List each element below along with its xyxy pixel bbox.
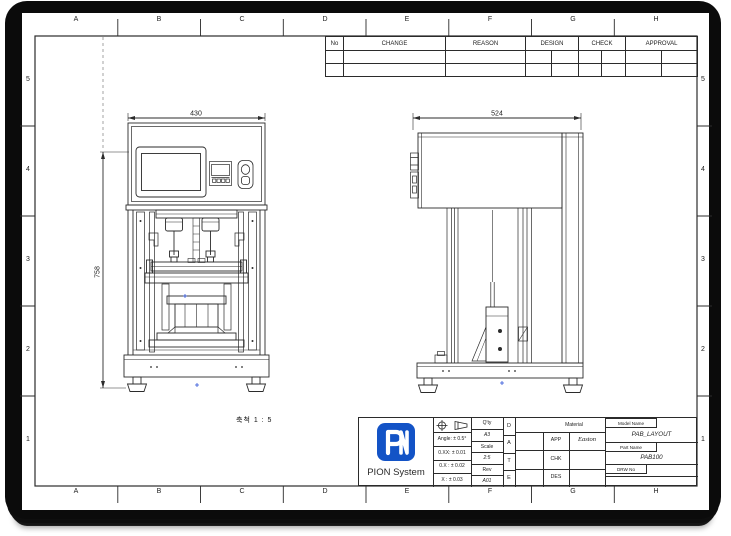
grid-row-label: 5 xyxy=(697,76,709,83)
revision-empty-row xyxy=(326,51,698,64)
pion-logo xyxy=(374,422,418,464)
grid-col-label: G xyxy=(558,16,588,23)
revision-header-row: No CHANGE REASON DESIGN CHECK APPROVAL xyxy=(326,37,698,51)
view-scale-note: 축척 1 : 5 xyxy=(236,415,326,425)
grid-col-label: F xyxy=(475,16,505,23)
rev-label: Rev xyxy=(471,468,503,473)
grid-col-label: C xyxy=(227,16,257,23)
app-label: APP xyxy=(543,438,569,443)
rev-col-check: CHECK xyxy=(579,37,626,51)
grid-col-label: H xyxy=(641,16,671,23)
scale-label: Scale xyxy=(471,445,503,450)
part-name-value: PAB100 xyxy=(605,455,698,461)
part-name-label: Part Name xyxy=(605,442,657,452)
grid-col-label: A xyxy=(61,488,91,495)
grid-col-label: D xyxy=(310,16,340,23)
grid-col-label: A xyxy=(61,16,91,23)
model-name-value: PAB_LAYOUT xyxy=(605,432,698,438)
grid-row-label: 2 xyxy=(22,346,34,353)
revision-empty-row xyxy=(326,64,698,77)
grid-row-label: 3 xyxy=(22,256,34,263)
grid-col-label: C xyxy=(227,488,257,495)
paper-size: A3 xyxy=(471,433,503,438)
grid-col-label: B xyxy=(144,488,174,495)
rev-col-no: No xyxy=(326,37,344,51)
grid-col-label: D xyxy=(310,488,340,495)
tolerance-int: X : ± 0.03 xyxy=(433,478,471,483)
grid-row-label: 1 xyxy=(22,436,34,443)
chk-label: CHK xyxy=(543,457,569,462)
grid-row-label: 4 xyxy=(697,166,709,173)
grid-col-label: E xyxy=(392,488,422,495)
material-label: Material xyxy=(543,423,605,428)
grid-row-label: 1 xyxy=(697,436,709,443)
projection-symbol-icon xyxy=(436,420,469,431)
date-letter-a: A xyxy=(503,441,515,447)
rev-value: A01 xyxy=(471,479,503,484)
qty-label: Q'ty xyxy=(471,421,503,426)
rev-col-approval: APPROVAL xyxy=(626,37,698,51)
revision-table: No CHANGE REASON DESIGN CHECK APPROVAL xyxy=(325,36,698,77)
tolerance-x: 0.X : ± 0.02 xyxy=(433,464,471,469)
tolerance-angle: Angle: ± 0.5° xyxy=(433,437,471,442)
scale-value: 2:5 xyxy=(471,456,503,461)
drw-no-label: DRW No xyxy=(605,464,647,474)
app-signature: Easton xyxy=(569,437,605,444)
date-letter-d: D xyxy=(503,424,515,430)
grid-col-label: E xyxy=(392,16,422,23)
grid-row-label: 2 xyxy=(697,346,709,353)
des-label: DES xyxy=(543,475,569,480)
grid-row-label: 3 xyxy=(697,256,709,263)
date-letter-e: E xyxy=(503,476,515,482)
title-block: PION System Angle: ± 0.5° 0.XX: ± 0.01 0… xyxy=(358,417,697,486)
model-name-label: Model Name xyxy=(605,418,657,428)
rev-col-design: DESIGN xyxy=(526,37,579,51)
grid-col-label: B xyxy=(144,16,174,23)
grid-col-label: G xyxy=(558,488,588,495)
rev-col-change: CHANGE xyxy=(344,37,446,51)
grid-row-label: 4 xyxy=(22,166,34,173)
grid-col-label: F xyxy=(475,488,505,495)
tolerance-xx: 0.XX: ± 0.01 xyxy=(433,451,471,456)
company-name: PION System xyxy=(361,468,431,478)
rev-col-reason: REASON xyxy=(446,37,526,51)
date-letter-t: T xyxy=(503,459,515,465)
grid-col-label: H xyxy=(641,488,671,495)
grid-row-label: 5 xyxy=(22,76,34,83)
screenshot-root: { "grid": { "cols": ["A","B","C","D","E"… xyxy=(0,0,731,536)
